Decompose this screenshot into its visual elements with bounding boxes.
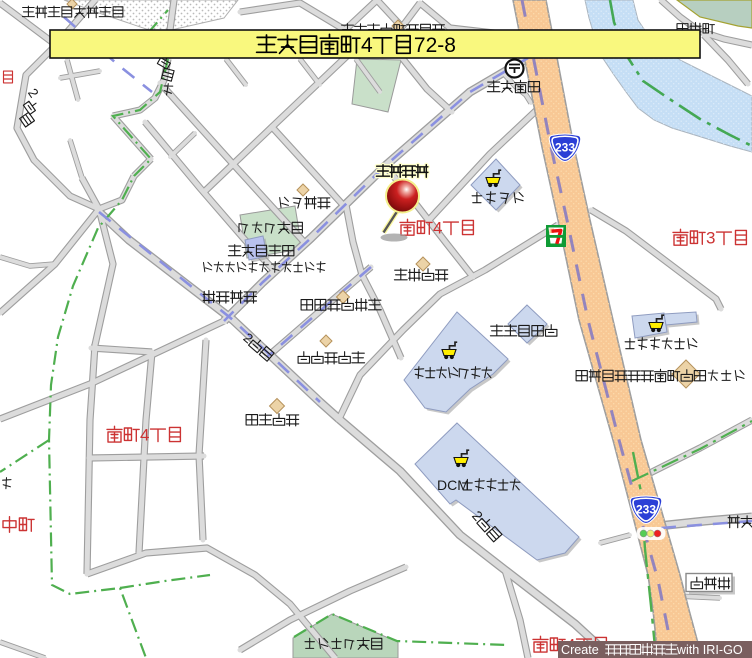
svg-text:3: 3: [706, 229, 715, 248]
svg-text:DCM: DCM: [437, 477, 469, 493]
svg-text:233: 233: [555, 141, 575, 155]
svg-text:4: 4: [140, 426, 149, 445]
svg-text:72-8: 72-8: [414, 34, 456, 57]
svg-text:with IRI-GO: with IRI-GO: [676, 643, 743, 657]
svg-text:233: 233: [636, 503, 656, 517]
svg-text:Create: Create: [561, 643, 599, 657]
svg-text:4: 4: [361, 34, 373, 57]
svg-text:4: 4: [433, 219, 442, 238]
